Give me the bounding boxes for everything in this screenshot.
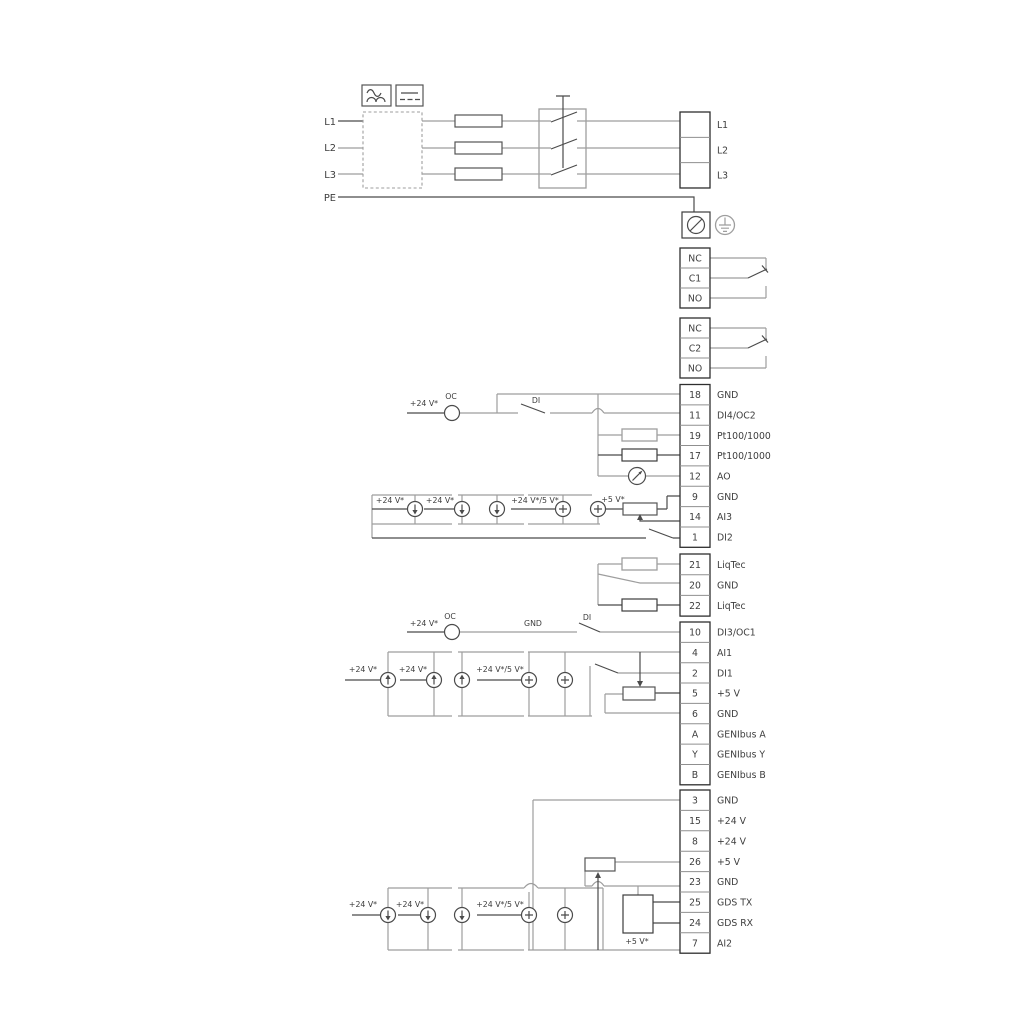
- resistor: [622, 599, 657, 611]
- emc-filter-box: [363, 112, 422, 188]
- terminal-label: DI4/OC2: [717, 410, 756, 421]
- terminal-number: 10: [689, 628, 701, 639]
- terminal-label: GDS RX: [717, 918, 754, 929]
- voltage-annotation: +24 V*: [376, 496, 404, 505]
- terminal-number: 8: [692, 836, 698, 847]
- dc-symbol-box: [396, 85, 423, 106]
- power-input-section: L1 L2 L3 PE: [324, 85, 735, 238]
- liqtec-wiring: [598, 558, 680, 611]
- current-source-icon: [455, 908, 470, 923]
- terminal-number: 3: [692, 796, 698, 807]
- terminal-block-io2: 10DI3/OC14AI12DI15+5 V6GNDAGENIbus AYGEN…: [680, 622, 766, 785]
- ai1-sensor-group: [345, 652, 680, 716]
- oc-annotation: OC: [444, 612, 456, 621]
- resistor: [622, 449, 657, 461]
- terminal-label: DI1: [717, 668, 733, 679]
- terminal-block-relay1: NCC1NO: [680, 248, 710, 308]
- terminal-label: +5 V: [717, 689, 741, 700]
- terminal-number: Y: [691, 750, 698, 761]
- terminal-block-io3: 3GND15+24 V8+24 V26+5 V23GND25GDS TX24GD…: [680, 790, 754, 953]
- relay1-wiring: [710, 258, 768, 298]
- terminal-number: 19: [689, 431, 701, 442]
- terminal-number: 21: [689, 560, 701, 571]
- io1-wiring: [407, 394, 680, 485]
- terminal-label: GND: [717, 580, 738, 591]
- fuse: [455, 168, 502, 180]
- wire: [577, 121, 680, 174]
- terminal-label: +5 V: [717, 857, 741, 868]
- di2-switch-wire: [372, 529, 680, 538]
- potentiometer-wiper-arrow: [637, 681, 643, 687]
- terminal-number: 18: [689, 390, 701, 401]
- terminal-number: 26: [689, 857, 701, 868]
- voltage-source-icon: [558, 908, 573, 923]
- voltage-annotation: +24 V*: [410, 399, 438, 408]
- terminal-number: 25: [689, 898, 701, 909]
- terminal-label: +24 V: [717, 836, 747, 847]
- voltage-annotation: +24 V*/5 V*: [476, 665, 524, 674]
- terminal-number: 15: [689, 816, 701, 827]
- voltage-annotation: +5 V*: [625, 937, 648, 946]
- terminal-number: 11: [689, 410, 701, 421]
- power-input-label: L3: [324, 170, 336, 181]
- terminal-label: AI2: [717, 938, 732, 949]
- terminal-block-power-out: L1L2L3: [680, 112, 728, 188]
- power-input-label: L1: [324, 117, 336, 128]
- di-annotation: DI: [532, 396, 540, 405]
- terminal-label: +24 V: [717, 816, 747, 827]
- voltage-annotation: +24 V*: [396, 900, 424, 909]
- voltage-annotation: +24 V*: [426, 496, 454, 505]
- terminal-number: NC: [688, 323, 701, 334]
- current-source-icon: [381, 908, 396, 923]
- terminal-label: AO: [717, 471, 731, 482]
- terminal-label: AI3: [717, 512, 732, 523]
- fuse: [455, 115, 502, 127]
- pe-terminal: [682, 212, 735, 238]
- analog-output-meter-icon: [629, 468, 646, 485]
- wire: [710, 258, 766, 298]
- resistor: [622, 429, 657, 441]
- wire: [710, 328, 766, 368]
- wiring-diagram: L1 L2 L3 PE: [0, 0, 1024, 1024]
- voltage-annotation: +24 V*/5 V*: [476, 900, 524, 909]
- di3-wiring: [407, 623, 680, 640]
- di-annotation: DI: [583, 613, 591, 622]
- voltage-source-icon: [558, 673, 573, 688]
- terminal-number: C1: [689, 273, 701, 284]
- terminal-label: GND: [717, 709, 738, 720]
- terminal-number: 7: [692, 938, 698, 949]
- voltage-annotation: +24 V*: [349, 900, 377, 909]
- terminal-number: 24: [689, 918, 701, 929]
- terminal-number: NO: [688, 293, 702, 304]
- relay-contact-blade: [748, 266, 768, 279]
- open-collector-icon: [445, 625, 460, 640]
- terminal-label: GDS TX: [717, 898, 753, 909]
- terminal-label: DI3/OC1: [717, 628, 756, 639]
- terminal-label: Pt100/1000: [717, 451, 771, 462]
- power-input-label: PE: [324, 193, 336, 204]
- current-source-icon: [490, 502, 505, 517]
- voltage-source-icon: [522, 908, 537, 923]
- terminal-label: DI2: [717, 533, 733, 544]
- terminal-number: A: [692, 729, 699, 740]
- terminal-label: LiqTec: [717, 560, 746, 571]
- voltage-annotation: +24 V*: [410, 619, 438, 628]
- voltage-annotation: +24 V*/5 V*: [511, 496, 559, 505]
- voltage-annotation: +24 V*: [349, 665, 377, 674]
- current-source-icon: [381, 673, 396, 688]
- voltage-source-icon: [522, 673, 537, 688]
- terminal-number: 12: [689, 471, 701, 482]
- terminal-label: GENIbus Y: [717, 750, 765, 761]
- terminal-label: GENIbus B: [717, 770, 766, 781]
- potentiometer-wiper-arrow: [595, 872, 601, 878]
- terminal-number: 14: [689, 512, 701, 523]
- terminal-number: 2: [692, 668, 698, 679]
- terminal-block-relay2: NCC2NO: [680, 318, 710, 378]
- terminal-number: 23: [689, 877, 701, 888]
- terminal-number: 4: [692, 648, 698, 659]
- terminal-number: 9: [692, 492, 698, 503]
- potentiometer: [623, 687, 655, 700]
- potentiometer: [585, 858, 615, 871]
- terminal-label: GND: [717, 796, 738, 807]
- terminal-number: 1: [692, 533, 698, 544]
- terminal-block-io1: 18GND11DI4/OC219Pt100/100017Pt100/100012…: [680, 385, 771, 548]
- terminal-number: C2: [689, 343, 701, 354]
- terminal-label: GND: [717, 492, 738, 503]
- terminal-label: AI1: [717, 648, 732, 659]
- gnd-annotation: GND: [524, 619, 542, 628]
- terminal-label: GND: [717, 390, 738, 401]
- terminal-block-outline: [680, 112, 710, 188]
- terminal-number: 17: [689, 451, 701, 462]
- terminal-label: GND: [717, 877, 738, 888]
- current-source-icon: [455, 673, 470, 688]
- terminal-number: 20: [689, 580, 701, 591]
- fuse: [455, 142, 502, 154]
- terminal-label: GENIbus A: [717, 729, 766, 740]
- main-switch: [539, 96, 680, 188]
- terminal-label: L2: [717, 145, 728, 156]
- terminal-block-liqtec: 21LiqTec20GND22LiqTec: [680, 554, 746, 616]
- terminal-label: L3: [717, 171, 728, 182]
- terminal-label: Pt100/1000: [717, 431, 771, 442]
- di-switch-blade: [579, 623, 600, 632]
- oc-annotation: OC: [445, 392, 457, 401]
- voltage-annotation: +24 V*: [399, 665, 427, 674]
- terminal-number: NC: [688, 253, 701, 264]
- relay-contact-blade: [748, 336, 768, 349]
- terminal-number: 22: [689, 601, 701, 612]
- wire: [338, 121, 694, 212]
- current-source-icon: [455, 502, 470, 517]
- current-source-icon: [427, 673, 442, 688]
- terminal-number: NO: [688, 363, 702, 374]
- resistor: [622, 558, 657, 570]
- wire: [338, 148, 363, 174]
- current-source-icon: [408, 502, 423, 517]
- gds-module-box: [623, 895, 653, 933]
- potentiometer: [623, 503, 657, 515]
- wiring-diagram-page: L1 L2 L3 PE: [0, 0, 1024, 1024]
- terminal-number: 5: [692, 689, 698, 700]
- terminal-number: 6: [692, 709, 698, 720]
- open-collector-icon: [445, 406, 460, 421]
- terminal-label: LiqTec: [717, 601, 746, 612]
- current-source-icon: [421, 908, 436, 923]
- terminal-number: B: [692, 770, 698, 781]
- fuses: [422, 115, 539, 180]
- power-input-label: L2: [324, 143, 336, 154]
- relay2-wiring: [710, 328, 768, 368]
- voltage-annotation: +5 V*: [601, 495, 624, 504]
- terminal-label: L1: [717, 120, 728, 131]
- ai2-sensor-group: [352, 800, 680, 950]
